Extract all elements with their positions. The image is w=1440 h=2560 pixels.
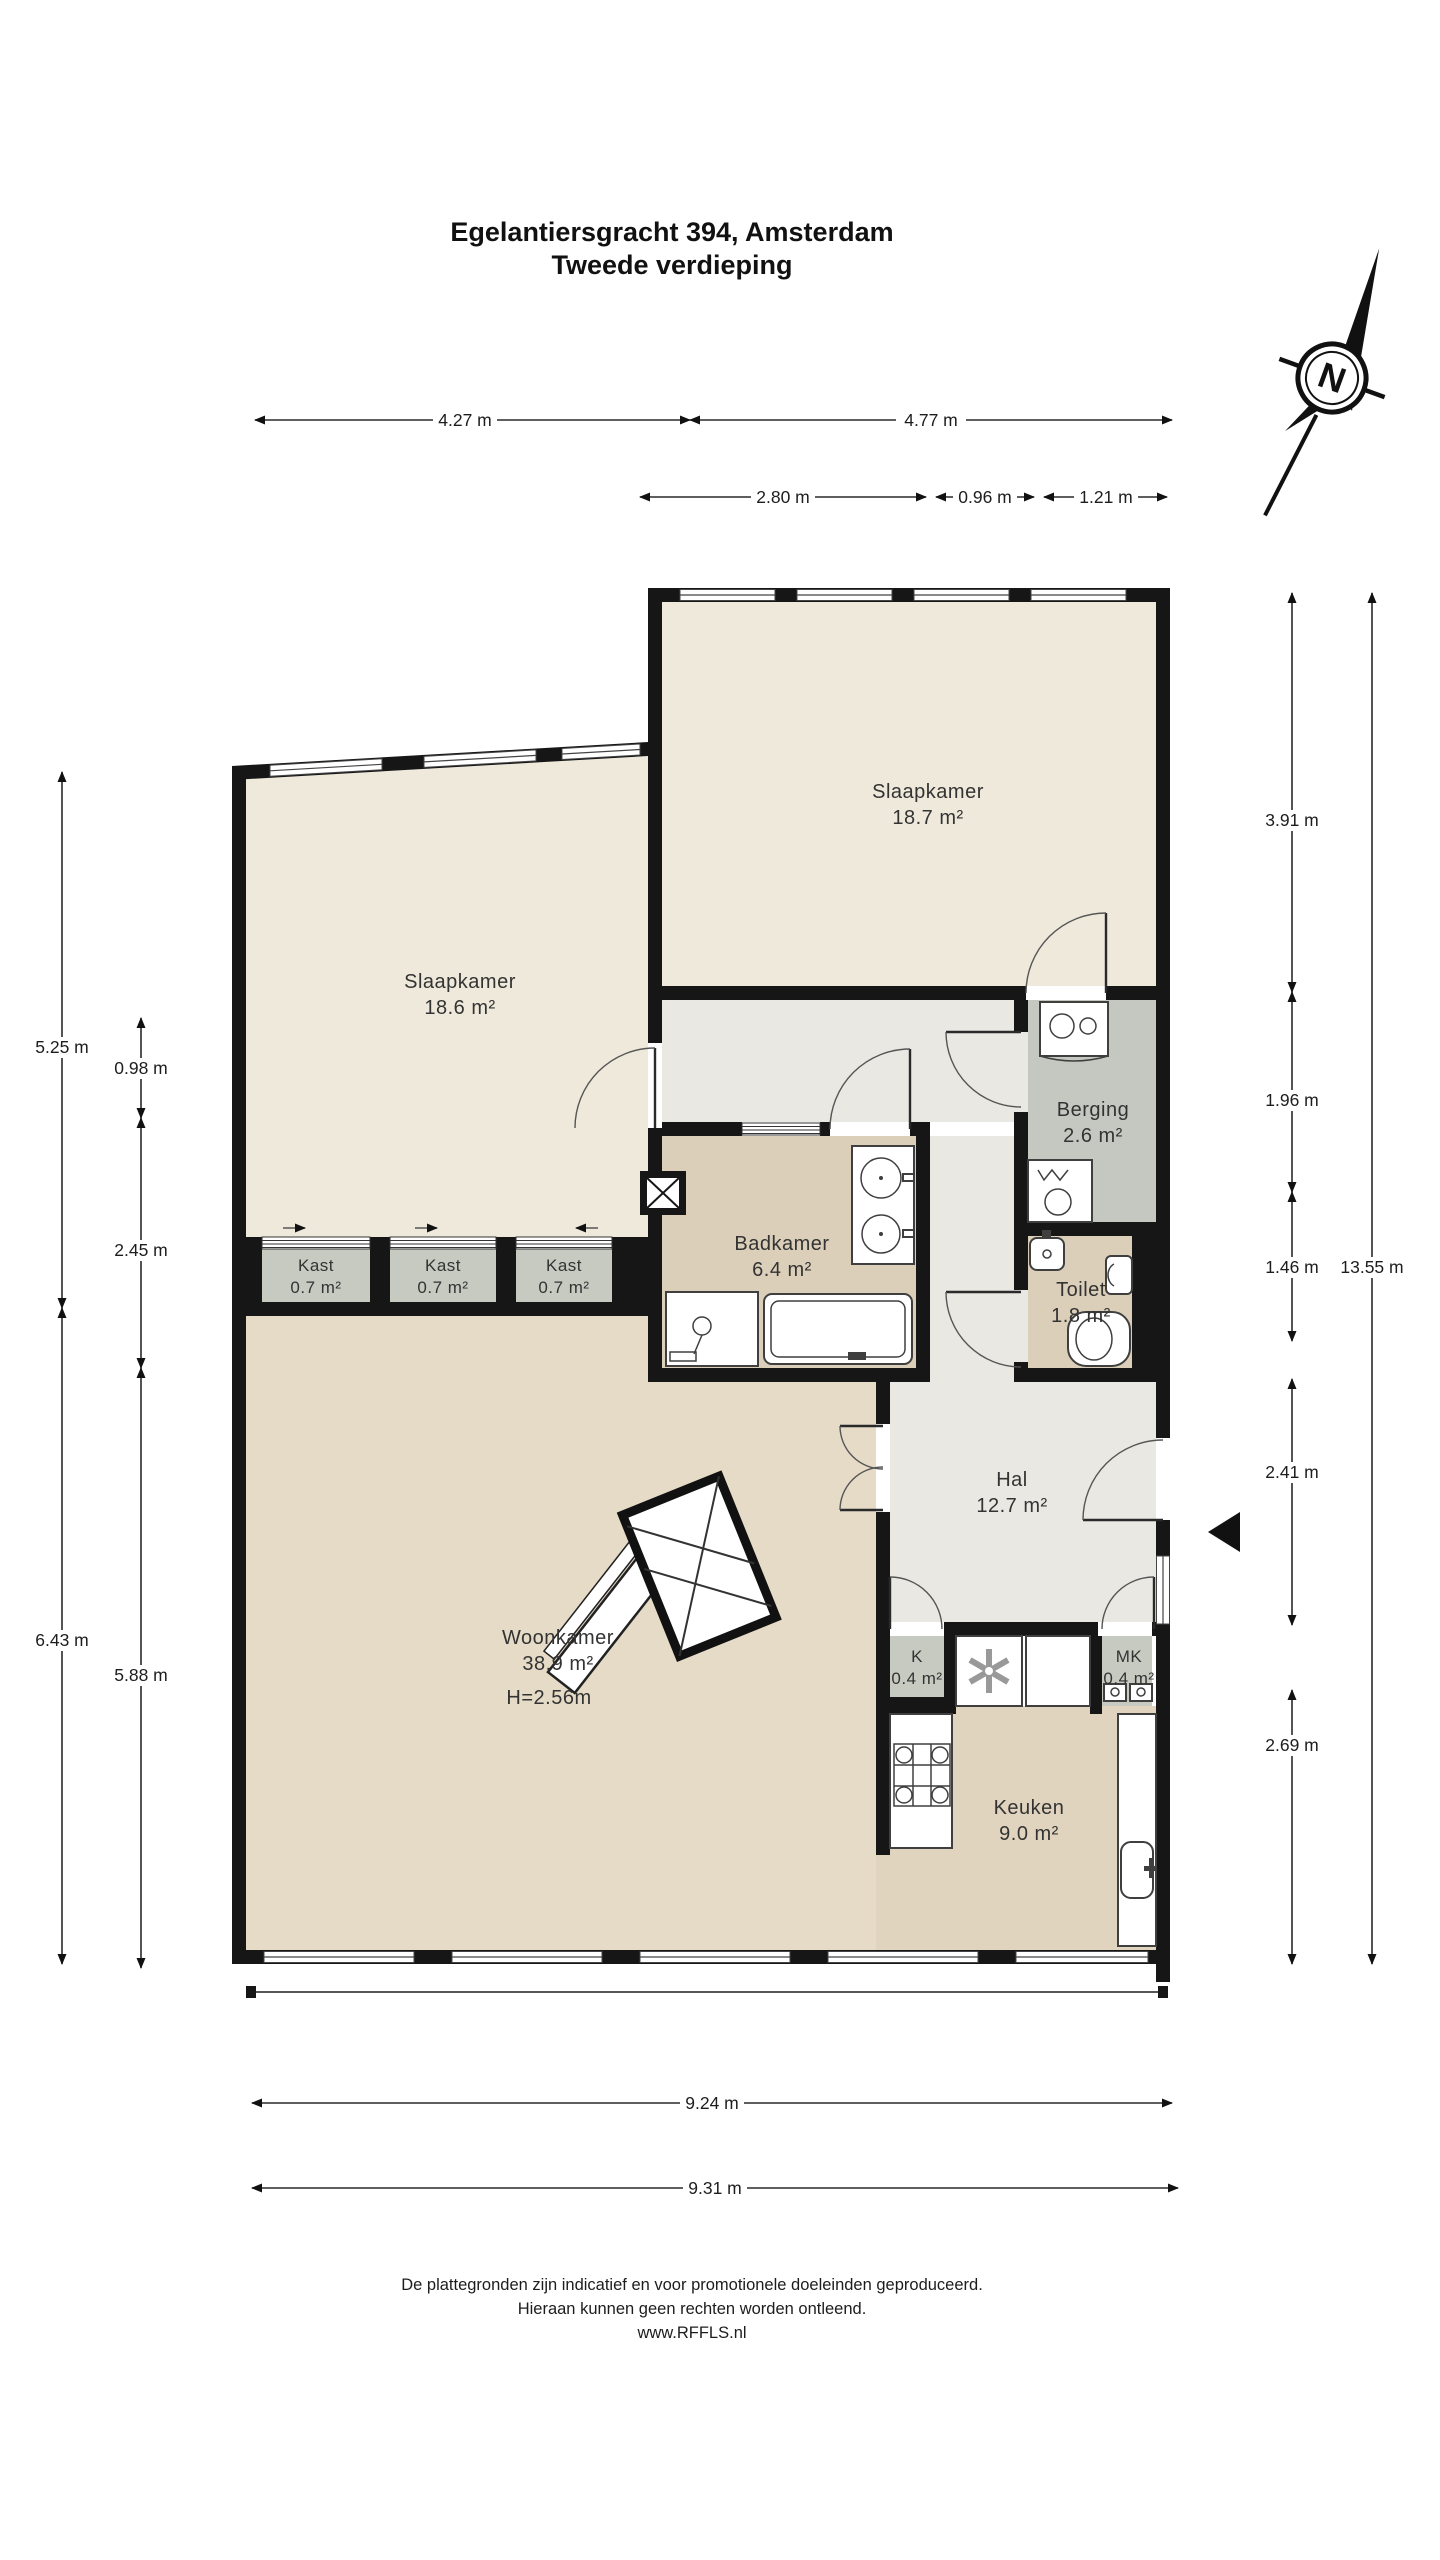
label-kast-2-name: Kast [425,1256,461,1275]
label-kast-1-name: Kast [298,1256,334,1275]
label-woonkamer-area: 38.9 m² [522,1653,593,1675]
title-line1: Egelantiersgracht 394, Amsterdam [450,217,893,247]
label-k-area: 0.4 m² [891,1669,942,1688]
dim-right-146: 1.46 m [1265,1257,1319,1277]
balcony-railing [246,1986,1168,1998]
kitchen-counter-left [890,1714,952,1848]
dim-top-477: 4.77 m [904,410,958,430]
label-badkamer-name: Badkamer [734,1233,829,1255]
dim-top-096: 0.96 m [958,487,1012,507]
dim-left-098: 0.98 m [114,1058,168,1078]
washing-machine [1028,1160,1092,1222]
appliance-box [1026,1636,1090,1706]
dim-top-121: 1.21 m [1079,487,1133,507]
floorplan-canvas: Egelantiersgracht 394, Amsterdam Tweede … [0,0,1440,2560]
label-woonkamer-height: H=2.56m [506,1687,591,1709]
footer-disclaimer: De plattegronden zijn indicatief en voor… [401,2276,983,2342]
dim-bottom-931: 9.31 m [688,2178,742,2198]
label-keuken-name: Keuken [994,1797,1065,1819]
dim-left-643: 6.43 m [35,1630,89,1650]
dim-top-280: 2.80 m [756,487,810,507]
label-toilet-area: 1.8 m² [1051,1305,1111,1327]
dim-right-391: 3.91 m [1265,810,1319,830]
label-kast-1-area: 0.7 m² [290,1278,341,1297]
label-hal-area: 12.7 m² [976,1495,1047,1517]
title-line2: Tweede verdieping [551,250,792,280]
dim-left-525: 5.25 m [35,1037,89,1057]
ventilation-unit [956,1636,1022,1706]
floorplan-page: Egelantiersgracht 394, Amsterdam Tweede … [0,0,1440,2560]
shower [666,1292,758,1366]
label-k-name: K [911,1647,923,1666]
entrance-arrow-icon [1208,1512,1240,1552]
label-mk-area: 0.4 m² [1103,1669,1154,1688]
dim-right-241: 2.41 m [1265,1462,1319,1482]
double-washbasin [852,1146,914,1264]
window-hal-right [1157,1556,1170,1624]
label-toilet-name: Toilet [1056,1279,1106,1301]
label-kast-2-area: 0.7 m² [417,1278,468,1297]
label-badkamer-area: 6.4 m² [752,1259,812,1281]
floor-hal-strip [890,1382,930,1622]
footer-line3: www.RFFLS.nl [636,2324,746,2342]
label-kast-3-area: 0.7 m² [538,1278,589,1297]
footer-line2: Hieraan kunnen geen rechten worden ontle… [518,2300,867,2318]
floor-keuken-strip [876,1855,890,1950]
kitchen-counter-right [1118,1714,1156,1946]
label-keuken-area: 9.0 m² [999,1823,1059,1845]
label-slaapkamer-1-area: 18.7 m² [892,807,963,829]
label-woonkamer-name: Woonkamer [502,1627,614,1649]
compass-north-icon: N [1227,229,1431,540]
dim-left-588: 5.88 m [114,1665,168,1685]
label-berging-name: Berging [1057,1099,1129,1121]
dim-left-245: 2.45 m [114,1240,168,1260]
bathtub [764,1294,912,1364]
label-berging-area: 2.6 m² [1063,1125,1123,1147]
dim-right-total: 13.55 m [1340,1257,1403,1277]
label-slaapkamer-1-name: Slaapkamer [872,781,984,803]
boiler-unit [1040,1002,1108,1061]
page-title: Egelantiersgracht 394, Amsterdam Tweede … [450,217,893,280]
label-slaapkamer-2-name: Slaapkamer [404,971,516,993]
dim-bottom-924: 9.24 m [685,2093,739,2113]
dim-top-427: 4.27 m [438,410,492,430]
label-slaapkamer-2-area: 18.6 m² [424,997,495,1019]
footer-line1: De plattegronden zijn indicatief en voor… [401,2276,983,2294]
dim-right-269: 2.69 m [1265,1735,1319,1755]
label-hal-name: Hal [996,1469,1028,1491]
label-kast-3-name: Kast [546,1256,582,1275]
shaft-icon [646,1177,680,1209]
label-mk-name: MK [1116,1647,1143,1666]
sliding-door-badkamer [742,1123,820,1135]
dim-right-196: 1.96 m [1265,1090,1319,1110]
